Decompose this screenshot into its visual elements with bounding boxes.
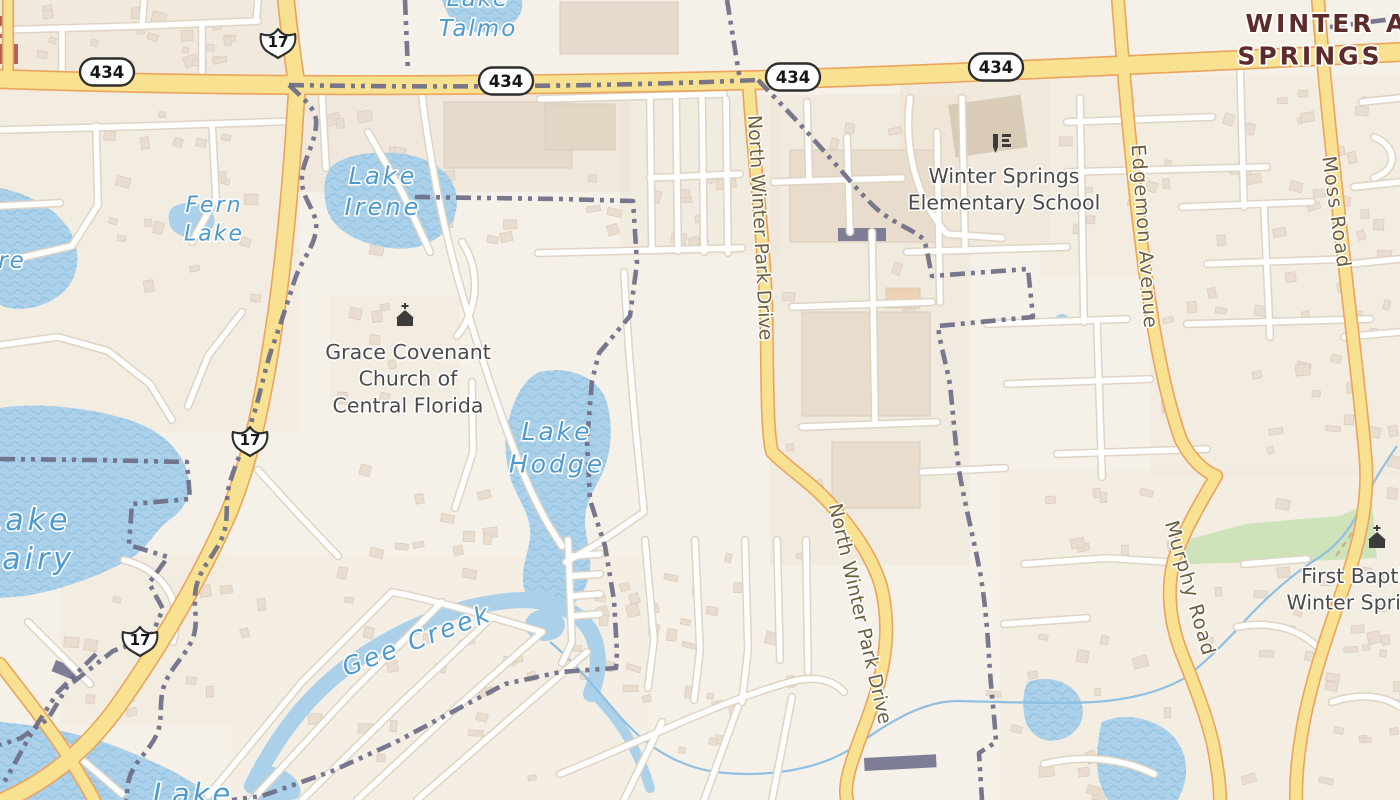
building: [1325, 673, 1339, 682]
label-bottom-lake: Lake: [153, 777, 234, 800]
building: [1259, 650, 1274, 657]
building: [1326, 426, 1341, 432]
building: [113, 597, 122, 603]
minor-road: [572, 614, 600, 616]
building: [117, 235, 126, 241]
building: [103, 130, 116, 141]
building: [1374, 219, 1384, 230]
building: [1094, 688, 1101, 696]
building: [1164, 707, 1171, 718]
apartment-building: [838, 228, 886, 241]
large-building: [802, 312, 930, 416]
building: [1078, 767, 1089, 777]
minor-road: [777, 540, 780, 660]
building: [359, 464, 372, 477]
building: [1046, 496, 1056, 504]
svg-text:434: 434: [776, 68, 810, 87]
map-svg: LakeTalmoFernLakeLakeIreneLakeHodgeLakeF…: [0, 0, 1400, 800]
building: [1028, 671, 1038, 680]
building: [143, 280, 155, 293]
minor-road: [572, 554, 600, 556]
building: [1038, 634, 1048, 640]
building: [64, 637, 80, 648]
building: [395, 543, 409, 550]
building: [91, 39, 99, 47]
building: [182, 47, 189, 53]
large-building: [560, 2, 678, 54]
building: [371, 310, 382, 322]
building: [1355, 106, 1369, 116]
building: [1362, 644, 1370, 650]
building: [623, 685, 638, 692]
building: [1076, 649, 1089, 663]
building: [377, 754, 385, 762]
svg-text:434: 434: [979, 58, 1013, 77]
svg-text:17: 17: [130, 631, 151, 649]
building: [588, 174, 597, 182]
building: [380, 303, 390, 311]
building: [1285, 271, 1297, 282]
label-left-partial: re: [0, 248, 26, 274]
building: [221, 134, 231, 142]
building: [1162, 178, 1170, 188]
building: [666, 629, 677, 642]
building: [1093, 488, 1101, 498]
building: [349, 307, 363, 320]
label-partial-a: A: [1386, 9, 1400, 38]
building: [336, 118, 345, 128]
building: [1367, 631, 1382, 645]
minor-road: [0, 203, 60, 206]
building: [1217, 235, 1226, 246]
state-route-shield-434: 434: [766, 64, 820, 91]
building: [1187, 301, 1198, 313]
state-route-shield-434: 434: [479, 68, 533, 95]
building: [626, 603, 640, 617]
building: [1121, 545, 1128, 556]
building: [1334, 727, 1344, 735]
building: [1381, 635, 1390, 646]
map-canvas[interactable]: LakeTalmoFernLakeLakeIreneLakeHodgeLakeF…: [0, 0, 1400, 800]
minor-road: [650, 99, 652, 250]
building: [1277, 567, 1291, 578]
building: [224, 36, 232, 46]
building: [43, 10, 53, 19]
building: [1388, 425, 1399, 437]
building: [707, 693, 713, 699]
building: [1215, 307, 1227, 314]
minor-road: [847, 137, 850, 232]
building: [1215, 587, 1222, 596]
building: [503, 220, 517, 229]
building: [1393, 681, 1400, 692]
building: [159, 112, 166, 118]
svg-text:434: 434: [489, 72, 523, 91]
building: [140, 137, 150, 150]
building: [145, 219, 152, 226]
building: [244, 194, 257, 204]
minor-road: [872, 232, 875, 422]
building: [181, 30, 193, 41]
building: [1379, 649, 1387, 657]
building: [251, 294, 261, 302]
building: [462, 568, 477, 579]
building: [86, 695, 95, 705]
svg-text:434: 434: [90, 63, 124, 82]
building: [1254, 590, 1268, 598]
building: [1344, 646, 1359, 652]
minor-road: [572, 594, 600, 596]
building: [782, 292, 795, 301]
building: [415, 493, 425, 504]
building: [453, 545, 464, 556]
building: [1351, 625, 1364, 633]
minor-road: [806, 540, 808, 672]
state-route-shield-434: 434: [969, 54, 1023, 81]
building: [468, 730, 483, 737]
svg-text:17: 17: [268, 33, 289, 51]
building: [206, 686, 214, 697]
building: [131, 8, 139, 19]
building: [1059, 137, 1072, 146]
state-route-shield-434: 434: [80, 59, 134, 86]
label-lake-talmo: LakeTalmo: [439, 0, 518, 42]
building: [1344, 415, 1354, 426]
building: [1390, 728, 1399, 735]
building: [786, 443, 794, 451]
svg-text:17: 17: [240, 431, 261, 449]
building: [357, 110, 373, 123]
building: [463, 531, 474, 542]
building: [1362, 737, 1372, 743]
building: [344, 597, 353, 603]
building: [678, 747, 686, 754]
building: [1246, 173, 1262, 185]
building: [220, 585, 233, 594]
building: [1298, 90, 1308, 97]
building: [1275, 498, 1290, 510]
minor-road: [256, 0, 258, 21]
building: [483, 534, 492, 545]
building: [845, 123, 855, 134]
building: [37, 50, 48, 58]
building: [196, 138, 207, 148]
minor-road: [142, 0, 144, 26]
large-building: [545, 104, 615, 150]
building: [1312, 391, 1320, 397]
building: [1277, 98, 1287, 104]
building: [1295, 364, 1310, 376]
minor-road: [807, 102, 809, 178]
minor-road: [572, 574, 600, 576]
building: [706, 606, 718, 616]
large-building: [832, 442, 920, 508]
building: [1300, 112, 1314, 123]
building: [390, 720, 397, 732]
building: [337, 567, 348, 580]
building: [186, 677, 197, 686]
building: [152, 221, 164, 235]
building: [83, 639, 97, 652]
building: [1100, 635, 1109, 645]
building: [363, 626, 375, 639]
building: [257, 598, 266, 611]
building: [1361, 209, 1369, 218]
building: [1087, 216, 1095, 224]
building: [173, 137, 183, 147]
building: [528, 775, 537, 782]
building: [1387, 488, 1398, 500]
